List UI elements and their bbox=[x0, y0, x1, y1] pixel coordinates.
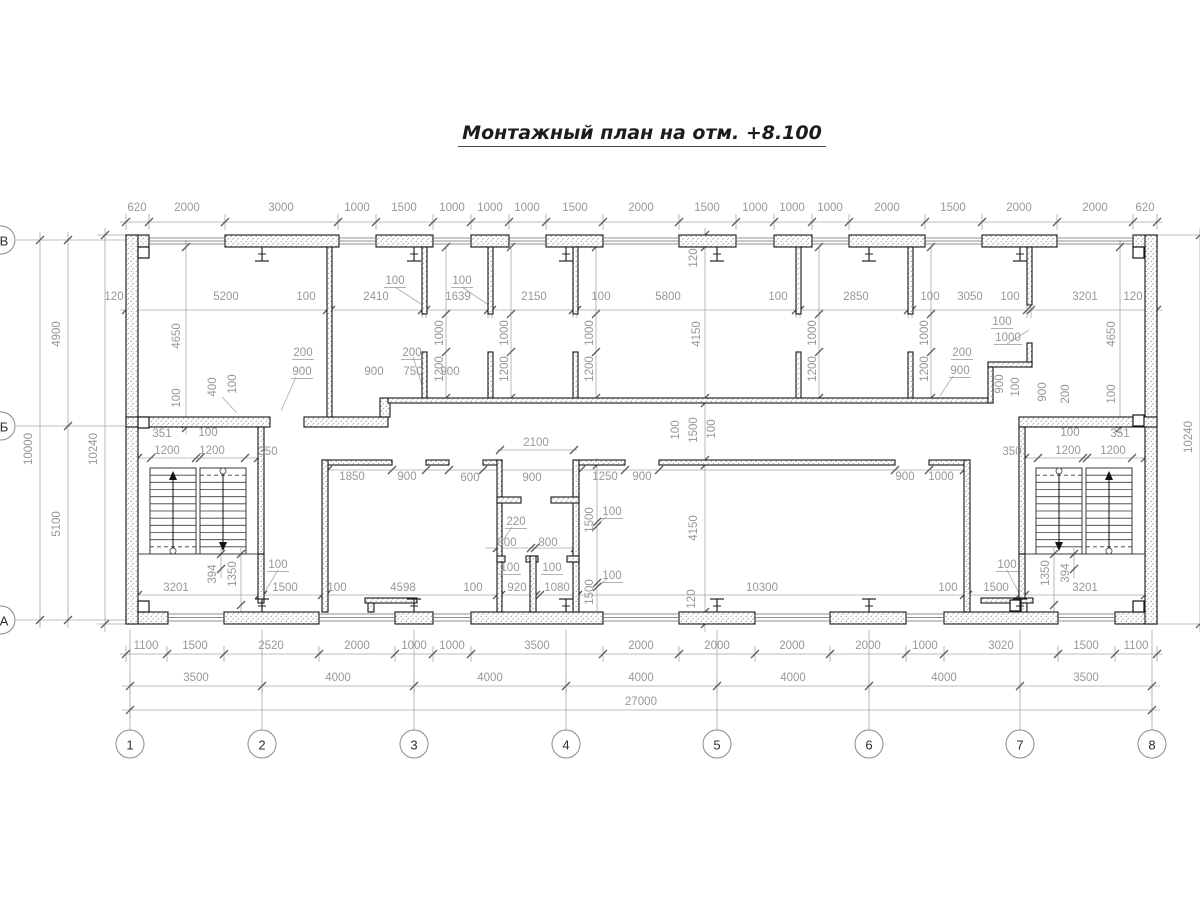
dimension-label: 1000 bbox=[742, 202, 768, 214]
dimension-label: 1250 bbox=[592, 471, 618, 483]
dimension-label: 100 bbox=[1060, 427, 1079, 439]
dimension-label: 1000 bbox=[995, 332, 1021, 344]
dimension-label: 100 bbox=[602, 506, 621, 518]
axis-bubble: 3 bbox=[400, 730, 428, 758]
dimension-label: 1500 bbox=[940, 202, 966, 214]
dimension-label: 1200 bbox=[1055, 445, 1081, 457]
dimension-label: 100 bbox=[768, 291, 787, 303]
axis-bubble: 6 bbox=[855, 730, 883, 758]
svg-text:А: А bbox=[0, 614, 9, 629]
axis-bubble: Б bbox=[0, 412, 15, 440]
dimension-label: 1080 bbox=[544, 582, 570, 594]
dimension-label: 1500 bbox=[584, 507, 596, 533]
dimension-label: 1500 bbox=[182, 640, 208, 652]
dimension-label: 2000 bbox=[704, 640, 730, 652]
dimension-label: 100 bbox=[1010, 377, 1022, 396]
dimension-label: 4000 bbox=[780, 672, 806, 684]
dimension-label: 100 bbox=[706, 419, 718, 438]
stair-flight bbox=[200, 468, 246, 554]
dimension-label: 4900 bbox=[51, 321, 63, 347]
axis-bubble: В bbox=[0, 226, 15, 254]
dimension-label: 2000 bbox=[344, 640, 370, 652]
dimension-label: 1500 bbox=[391, 202, 417, 214]
dimension-label: 5800 bbox=[655, 291, 681, 303]
dimension-label: 1000 bbox=[919, 320, 931, 346]
dimension-label: 100 bbox=[452, 275, 471, 287]
dimension-label: 120 bbox=[688, 248, 700, 267]
dimension-label: 3500 bbox=[1073, 672, 1099, 684]
dimension-label: 350 bbox=[1002, 446, 1021, 458]
svg-text:1: 1 bbox=[126, 738, 133, 753]
dimension-label: 100 bbox=[268, 559, 287, 571]
dimension-label: 1200 bbox=[1100, 445, 1126, 457]
dimension-label: 200 bbox=[402, 347, 421, 359]
dimension-label: 4150 bbox=[691, 321, 703, 347]
dimension-label: 1100 bbox=[1124, 640, 1149, 652]
dimension-label: 900 bbox=[994, 374, 1006, 393]
dimension-label: 3201 bbox=[1072, 582, 1098, 594]
dimension-label: 1200 bbox=[584, 356, 596, 382]
dimension-label: 100 bbox=[1106, 384, 1118, 403]
svg-text:6: 6 bbox=[865, 738, 872, 753]
dimension-label: 1000 bbox=[477, 202, 503, 214]
dimension-label: 394 bbox=[1060, 563, 1072, 583]
svg-text:В: В bbox=[0, 234, 8, 249]
dimension-label: 100 bbox=[602, 570, 621, 582]
dimension-label: 1200 bbox=[199, 445, 225, 457]
dimension-label: 2000 bbox=[1082, 202, 1108, 214]
details-layer bbox=[138, 238, 1144, 621]
dimension-label: 620 bbox=[127, 202, 146, 214]
axis-bubble: А bbox=[0, 606, 15, 634]
dimension-label: 100 bbox=[591, 291, 610, 303]
dimension-label: 1500 bbox=[688, 417, 700, 443]
dimension-label: 100 bbox=[227, 374, 239, 393]
stair-flight bbox=[150, 468, 196, 554]
floor-plan-drawing: 6202000300010001500100010001000150020001… bbox=[0, 0, 1200, 900]
dimension-label: 1350 bbox=[1040, 560, 1052, 586]
dimension-label: 1500 bbox=[983, 582, 1009, 594]
dimension-label: 1850 bbox=[339, 471, 365, 483]
dimension-label: 920 bbox=[507, 582, 526, 594]
dimension-label: 10240 bbox=[1183, 421, 1195, 453]
stair-flight bbox=[1086, 468, 1132, 554]
dimension-label: 2000 bbox=[174, 202, 200, 214]
dimension-label: 900 bbox=[1037, 382, 1049, 401]
dimension-label: 1200 bbox=[807, 356, 819, 382]
dimension-label: 600 bbox=[460, 472, 479, 484]
dimension-label: 100 bbox=[920, 291, 939, 303]
dimension-label: 1200 bbox=[499, 356, 511, 382]
dimension-label: 2410 bbox=[363, 291, 389, 303]
dimension-label: 2000 bbox=[628, 202, 654, 214]
dimension-label: 900 bbox=[292, 366, 311, 378]
dimension-label: 4000 bbox=[325, 672, 351, 684]
dimension-label: 2100 bbox=[523, 437, 549, 449]
axis-bubble: 8 bbox=[1138, 730, 1166, 758]
dimension-label: 2000 bbox=[1006, 202, 1032, 214]
dimension-label: 10300 bbox=[746, 582, 778, 594]
dimension-label: 900 bbox=[950, 365, 969, 377]
svg-text:5: 5 bbox=[713, 738, 720, 753]
dimension-label: 3050 bbox=[957, 291, 983, 303]
dimension-label: 1000 bbox=[584, 320, 596, 346]
dimension-label: 200 bbox=[952, 347, 971, 359]
dimension-label: 351 bbox=[152, 428, 171, 440]
svg-text:2: 2 bbox=[258, 738, 265, 753]
dimension-label: 3500 bbox=[183, 672, 209, 684]
dimension-label: 200 bbox=[293, 347, 312, 359]
dimension-label: 350 bbox=[258, 446, 277, 458]
dimension-label: 200 bbox=[1060, 384, 1072, 403]
dimension-label: 1500 bbox=[694, 202, 720, 214]
dimension-label: 100 bbox=[992, 316, 1011, 328]
dimension-label: 4598 bbox=[390, 582, 416, 594]
dimension-label: 900 bbox=[895, 471, 914, 483]
dimension-label: 1200 bbox=[154, 445, 180, 457]
dimension-label: 2150 bbox=[521, 291, 547, 303]
svg-text:8: 8 bbox=[1148, 738, 1155, 753]
svg-text:7: 7 bbox=[1016, 738, 1023, 753]
dimension-label: 1000 bbox=[514, 202, 540, 214]
dimension-label: 2000 bbox=[855, 640, 881, 652]
dimension-label: 4150 bbox=[688, 515, 700, 541]
dimension-label: 100 bbox=[327, 582, 346, 594]
dimension-label: 1000 bbox=[817, 202, 843, 214]
dimension-label: 4000 bbox=[477, 672, 503, 684]
dimension-label: 100 bbox=[198, 427, 217, 439]
dimension-label: 10240 bbox=[88, 433, 100, 465]
dimension-label: 900 bbox=[522, 472, 541, 484]
dimension-label: 10000 bbox=[23, 433, 35, 465]
dimension-label: 4650 bbox=[1106, 321, 1118, 347]
dimension-label: 120 bbox=[686, 589, 698, 608]
dimension-label: 5200 bbox=[213, 291, 239, 303]
dimension-label: 900 bbox=[440, 366, 459, 378]
dimension-label: 394 bbox=[207, 564, 219, 584]
dimension-label: 800 bbox=[538, 537, 557, 549]
svg-text:4: 4 bbox=[562, 738, 569, 753]
axis-bubble: 2 bbox=[248, 730, 276, 758]
dimension-label: 100 bbox=[542, 562, 561, 574]
dimension-label: 900 bbox=[632, 471, 651, 483]
dimension-label: 100 bbox=[1000, 291, 1019, 303]
dimension-label: 1000 bbox=[928, 471, 954, 483]
axis-bubble: 5 bbox=[703, 730, 731, 758]
dimension-label: 220 bbox=[506, 516, 525, 528]
dimension-label: 100 bbox=[463, 582, 482, 594]
dimension-label: 1500 bbox=[562, 202, 588, 214]
dimension-label: 1000 bbox=[434, 320, 446, 346]
dimension-label: 1200 bbox=[919, 356, 931, 382]
dimension-label: 1100 bbox=[134, 640, 159, 652]
stair-flight bbox=[1036, 468, 1082, 554]
dimension-label: 800 bbox=[497, 537, 516, 549]
dimension-label: 750 bbox=[403, 366, 422, 378]
dimension-label: 100 bbox=[938, 582, 957, 594]
dimension-label: 3500 bbox=[524, 640, 550, 652]
dimension-label: 3020 bbox=[988, 640, 1014, 652]
dimension-label: 1000 bbox=[439, 640, 465, 652]
svg-text:Б: Б bbox=[0, 420, 8, 435]
dimension-label: 100 bbox=[296, 291, 315, 303]
dimension-label: 2850 bbox=[843, 291, 869, 303]
axis-bubble: 7 bbox=[1006, 730, 1034, 758]
axis-bubble: 1 bbox=[116, 730, 144, 758]
dimension-label: 900 bbox=[397, 471, 416, 483]
dimension-label: 3201 bbox=[163, 582, 189, 594]
dimension-label: 2520 bbox=[258, 640, 284, 652]
dimension-label: 900 bbox=[364, 366, 383, 378]
dimension-label: 120 bbox=[104, 291, 123, 303]
dimension-label: 100 bbox=[670, 420, 682, 439]
dimension-label: 1000 bbox=[401, 640, 427, 652]
blueprint-canvas: Монтажный план на отм. +8.100 6202000300… bbox=[0, 0, 1200, 900]
dimension-label: 1500 bbox=[1073, 640, 1099, 652]
dimension-label: 2000 bbox=[628, 640, 654, 652]
dimension-label: 100 bbox=[385, 275, 404, 287]
dimension-labels-layer: 6202000300010001500100010001000150020001… bbox=[23, 202, 1195, 708]
dimension-label: 2000 bbox=[874, 202, 900, 214]
dimension-label: 100 bbox=[500, 562, 519, 574]
dimension-label: 5100 bbox=[51, 511, 63, 537]
dimension-label: 3000 bbox=[268, 202, 294, 214]
dimension-label: 1500 bbox=[584, 579, 596, 605]
dimension-label: 1350 bbox=[227, 561, 239, 587]
dimension-label: 3201 bbox=[1072, 291, 1098, 303]
dimension-label: 120 bbox=[1123, 291, 1142, 303]
dimension-label: 4000 bbox=[628, 672, 654, 684]
axis-bubbles-layer: 12345678ВБА bbox=[0, 226, 1166, 758]
dimension-label: 1000 bbox=[439, 202, 465, 214]
dimension-label: 620 bbox=[1135, 202, 1154, 214]
dimension-label: 1000 bbox=[912, 640, 938, 652]
dimension-label: 4650 bbox=[171, 323, 183, 349]
svg-text:3: 3 bbox=[410, 738, 417, 753]
dimension-label: 400 bbox=[207, 377, 219, 396]
dimension-label: 1000 bbox=[807, 320, 819, 346]
dimension-label: 100 bbox=[997, 559, 1016, 571]
dimension-label: 100 bbox=[171, 388, 183, 407]
dimension-label: 1000 bbox=[344, 202, 370, 214]
dimension-label: 4000 bbox=[931, 672, 957, 684]
dimension-label: 1000 bbox=[779, 202, 805, 214]
dimension-label: 2000 bbox=[779, 640, 805, 652]
dimension-label: 1500 bbox=[272, 582, 298, 594]
axis-bubble: 4 bbox=[552, 730, 580, 758]
dimension-label: 1000 bbox=[499, 320, 511, 346]
dimension-label: 27000 bbox=[625, 696, 657, 708]
dimension-label: 351 bbox=[1110, 428, 1129, 440]
dimension-label: 1639 bbox=[445, 291, 471, 303]
